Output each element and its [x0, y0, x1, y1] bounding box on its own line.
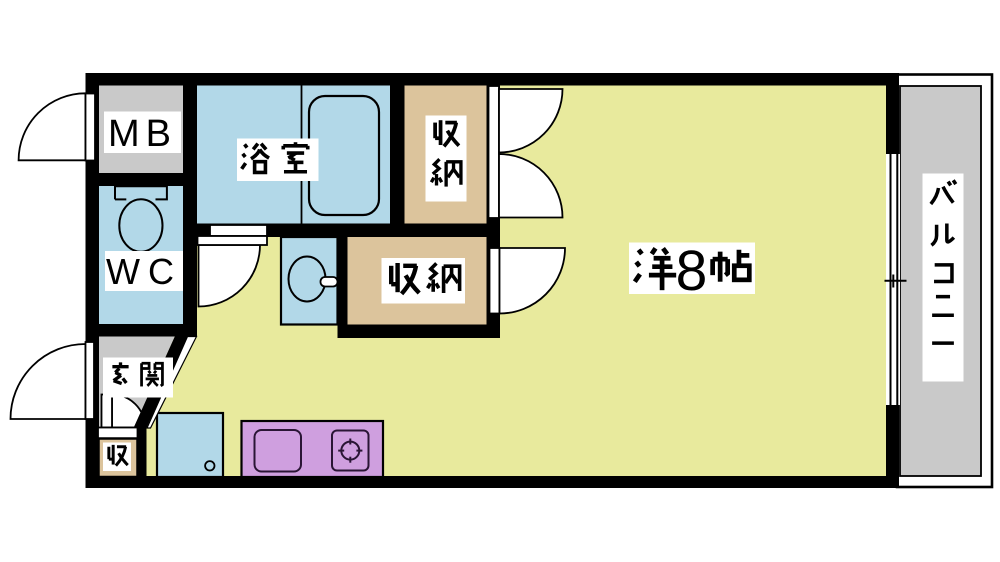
svg-text:MB: MB	[108, 113, 177, 155]
svg-text:WC: WC	[106, 251, 182, 292]
svg-text:8: 8	[676, 239, 708, 303]
